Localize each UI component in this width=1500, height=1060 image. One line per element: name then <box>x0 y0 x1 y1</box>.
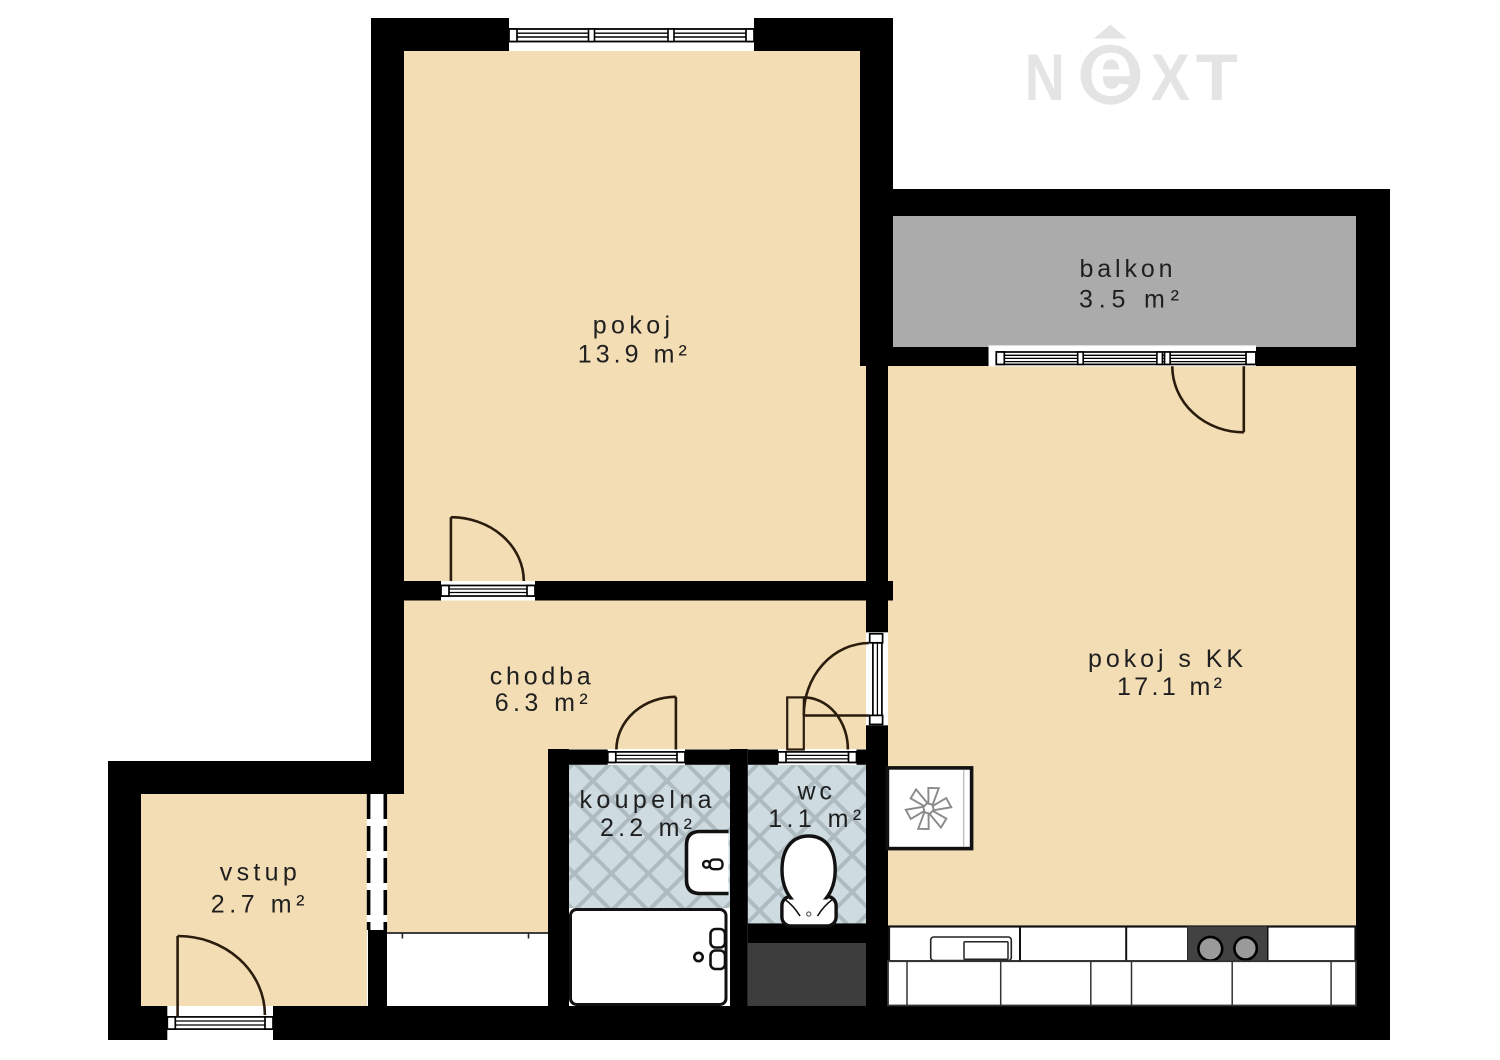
svg-text:X: X <box>1151 40 1190 114</box>
svg-text:koupelna: koupelna <box>580 786 712 814</box>
svg-text:pokoj: pokoj <box>593 312 670 340</box>
svg-text:T: T <box>1196 40 1238 114</box>
svg-text:wc: wc <box>797 778 832 806</box>
svg-text:N: N <box>1025 40 1065 114</box>
svg-text:vstup: vstup <box>220 859 297 887</box>
